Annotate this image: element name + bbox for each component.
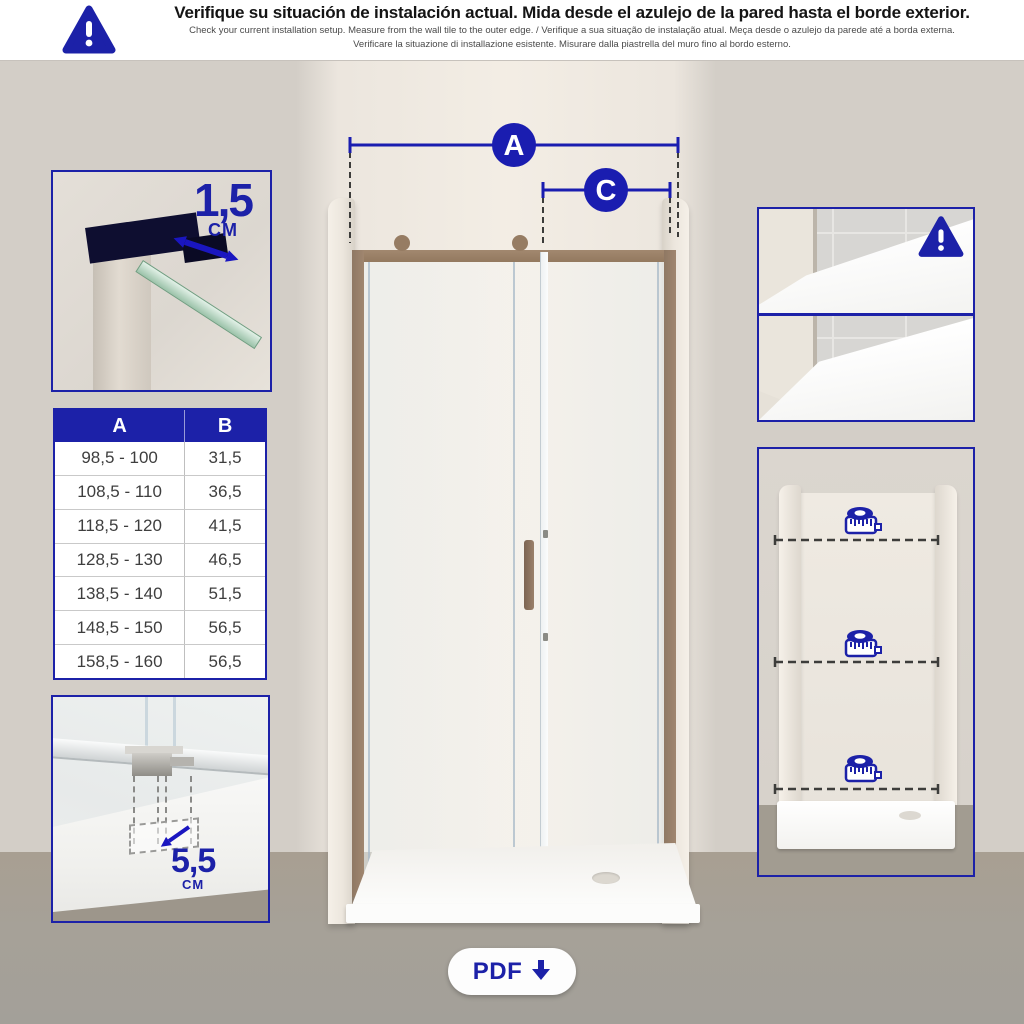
dimension-c-label: C <box>596 175 617 207</box>
warning-panel-tray-corner <box>757 207 975 422</box>
door-edge-fitting <box>543 633 548 641</box>
door-handle <box>524 540 534 610</box>
door-edge-fitting <box>543 530 548 538</box>
detail-panel-top-adjustment: 1,5 CM <box>51 170 272 392</box>
column-header-a: A <box>55 410 185 442</box>
pdf-button-label: PDF <box>473 958 523 986</box>
cell-b-value: 56,5 <box>185 645 265 678</box>
drain-cover <box>592 872 620 884</box>
installation-guide-page: Verifique su situación de instalación ac… <box>0 0 1024 1024</box>
cell-a-range: 98,5 - 100 <box>55 442 185 475</box>
cell-a-range: 128,5 - 130 <box>55 544 185 577</box>
detail-panel-bottom-clearance: 5,5 CM <box>51 695 270 923</box>
table-row: 158,5 - 16056,5 <box>55 644 265 678</box>
cell-b-value: 51,5 <box>185 577 265 610</box>
dimension-a-label: A <box>504 130 525 162</box>
guide-bracket <box>132 753 172 776</box>
warning-triangle-icon <box>62 4 116 61</box>
guide-arm <box>170 757 194 766</box>
column-header-b: B <box>185 410 265 442</box>
warning-photo-bottom <box>759 316 973 420</box>
tape-measure-icon <box>840 626 884 660</box>
glass-edge-line <box>657 252 659 902</box>
sliding-door-edge <box>540 252 548 902</box>
cell-b-value: 31,5 <box>185 442 265 475</box>
download-arrow-icon <box>531 959 551 984</box>
shower-tray-front <box>346 904 700 923</box>
cell-b-value: 46,5 <box>185 544 265 577</box>
cell-a-range: 108,5 - 110 <box>55 476 185 509</box>
table-row: 148,5 - 15056,5 <box>55 610 265 644</box>
dimension-c-badge: C <box>584 168 628 212</box>
dimension-table: A B 98,5 - 10031,5108,5 - 11036,5118,5 -… <box>53 408 267 680</box>
table-row: 118,5 - 12041,5 <box>55 509 265 543</box>
cell-b-value: 36,5 <box>185 476 265 509</box>
tape-measure-icon <box>840 751 884 785</box>
table-row: 108,5 - 11036,5 <box>55 475 265 509</box>
cell-b-value: 56,5 <box>185 611 265 644</box>
header-text: Verifique su situación de instalación ac… <box>128 3 1016 51</box>
top-adjustment-number: 1,5 <box>194 180 252 221</box>
shower-tray-surface <box>352 843 696 905</box>
table-row: 138,5 - 14051,5 <box>55 576 265 610</box>
dimension-overlay: A C <box>320 115 700 255</box>
cell-a-range: 148,5 - 150 <box>55 611 185 644</box>
glass-cross-section <box>135 260 262 349</box>
table-row: 128,5 - 13046,5 <box>55 543 265 577</box>
glass-edge-line <box>368 252 370 902</box>
frame-left <box>352 250 364 906</box>
bottom-clearance-number: 5,5 <box>171 845 215 877</box>
dimension-a-badge: A <box>492 123 536 167</box>
cell-a-range: 158,5 - 160 <box>55 645 185 678</box>
page-subtitle-it: Verificare la situazione di installazion… <box>128 39 1016 51</box>
cell-a-range: 138,5 - 140 <box>55 577 185 610</box>
tape-measure-icon <box>840 503 884 537</box>
warning-photo-top <box>759 209 973 313</box>
bottom-clearance-value: 5,5 CM <box>171 845 215 892</box>
table-header: A B <box>55 410 265 442</box>
pdf-download-button[interactable]: PDF <box>448 948 576 995</box>
measure-heights-panel <box>757 447 975 877</box>
cell-b-value: 41,5 <box>185 510 265 543</box>
wall-profile-left <box>328 198 355 924</box>
warning-triangle-icon <box>917 215 965 264</box>
page-subtitle-en-pt: Check your current installation setup. M… <box>128 25 1016 37</box>
page-title: Verifique su situación de instalación ac… <box>128 3 1016 23</box>
header: Verifique su situación de instalación ac… <box>0 0 1024 61</box>
cell-a-range: 118,5 - 120 <box>55 510 185 543</box>
tray-surface-detail <box>53 697 268 921</box>
top-adjustment-value: 1,5 CM <box>194 180 252 239</box>
table-row: 98,5 - 10031,5 <box>55 442 265 475</box>
glass-edge-line <box>513 252 515 902</box>
frame-right <box>664 250 676 906</box>
table-body: 98,5 - 10031,5108,5 - 11036,5118,5 - 120… <box>55 442 265 678</box>
